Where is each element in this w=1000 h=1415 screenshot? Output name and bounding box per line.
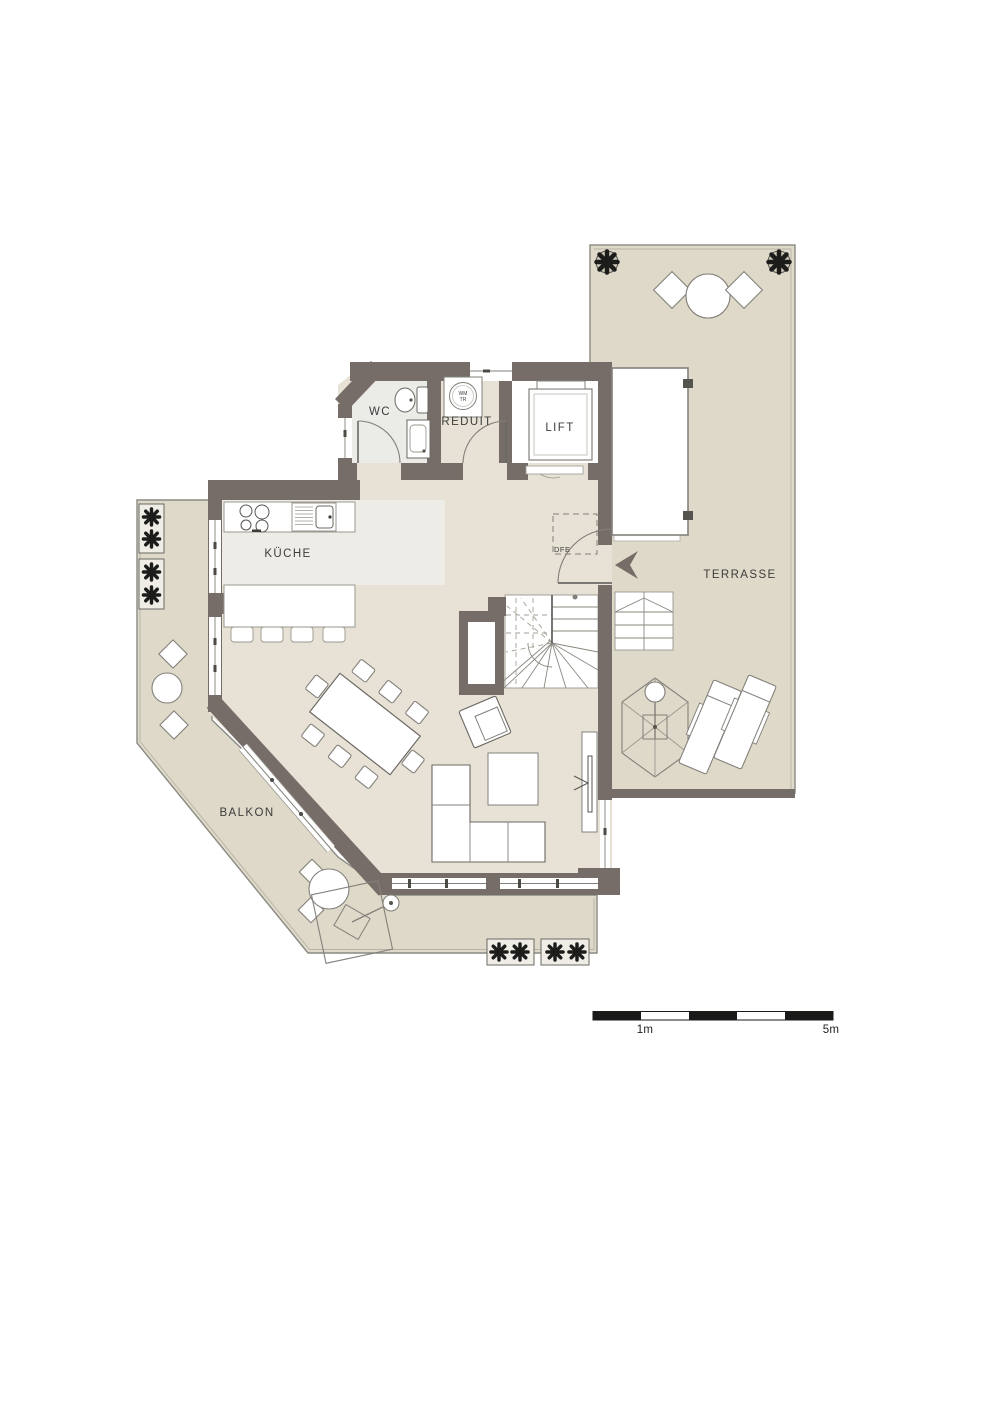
- terrace-pot: [768, 251, 790, 273]
- washer-label-2: TR: [460, 397, 467, 403]
- elevator-icon: [529, 381, 592, 460]
- terrasse-label: TERRASSE: [703, 569, 776, 581]
- plant-icon: [512, 944, 528, 960]
- kitchen-island: [224, 585, 355, 627]
- plant-icon: [143, 564, 159, 580]
- stair-storage-closet: [459, 597, 506, 695]
- interior-staircase: [500, 595, 598, 689]
- floorplan-drawing: DFE: [0, 0, 1000, 1415]
- planter-box: [541, 939, 589, 965]
- terrace-pot: [596, 251, 618, 273]
- window-wc-west: [338, 418, 352, 458]
- planter-box: [487, 939, 534, 965]
- plant-icon: [491, 944, 507, 960]
- balkon-label: BALKON: [219, 807, 274, 819]
- glazed-stair-enclosure: [612, 368, 693, 535]
- dfe-label: DFE: [554, 545, 571, 554]
- enclosure-post: [683, 379, 693, 388]
- scale-1m-label: 1m: [637, 1024, 654, 1036]
- window-west-upper: [209, 520, 221, 593]
- terrace-south-wall: [610, 789, 795, 798]
- kueche-label: KÜCHE: [264, 548, 311, 560]
- floorplan-canvas: DFE: [0, 0, 1000, 1415]
- plant-icon: [143, 531, 159, 547]
- stair-post: [573, 595, 578, 600]
- sink-icon: [407, 420, 430, 458]
- tv-icon: [588, 756, 592, 812]
- kitchen-sink-icon: [292, 503, 336, 531]
- plant-icon: [547, 944, 563, 960]
- plant-icon: [143, 587, 159, 603]
- plant-icon: [769, 252, 790, 273]
- plant-icon: [143, 509, 159, 525]
- reduit-label: REDUIT: [441, 416, 492, 428]
- terrace-round-table: [686, 274, 730, 318]
- window-east: [600, 800, 610, 868]
- lift-label: LIFT: [545, 422, 574, 434]
- wc-label: WC: [369, 406, 391, 418]
- exterior-staircase: [615, 592, 673, 650]
- window-south-left: [392, 878, 486, 889]
- planter-box: [139, 504, 164, 553]
- coffee-table: [488, 753, 538, 805]
- window-south-right: [500, 878, 598, 889]
- window-west-lower: [209, 617, 221, 695]
- plant-icon: [597, 252, 618, 273]
- toilet-icon: [395, 387, 428, 413]
- washing-machine-icon: WM TR: [444, 377, 482, 417]
- enclosure-post: [683, 511, 693, 520]
- plant-icon: [569, 944, 585, 960]
- balcony-round-table: [152, 673, 182, 703]
- scale-5m-label: 5m: [823, 1024, 840, 1036]
- planter-box: [139, 559, 164, 609]
- wall-east-lower: [598, 585, 612, 800]
- balcony-table: [309, 869, 349, 909]
- wall-east-upper: [598, 362, 612, 545]
- wall-kitchen-north: [208, 480, 360, 500]
